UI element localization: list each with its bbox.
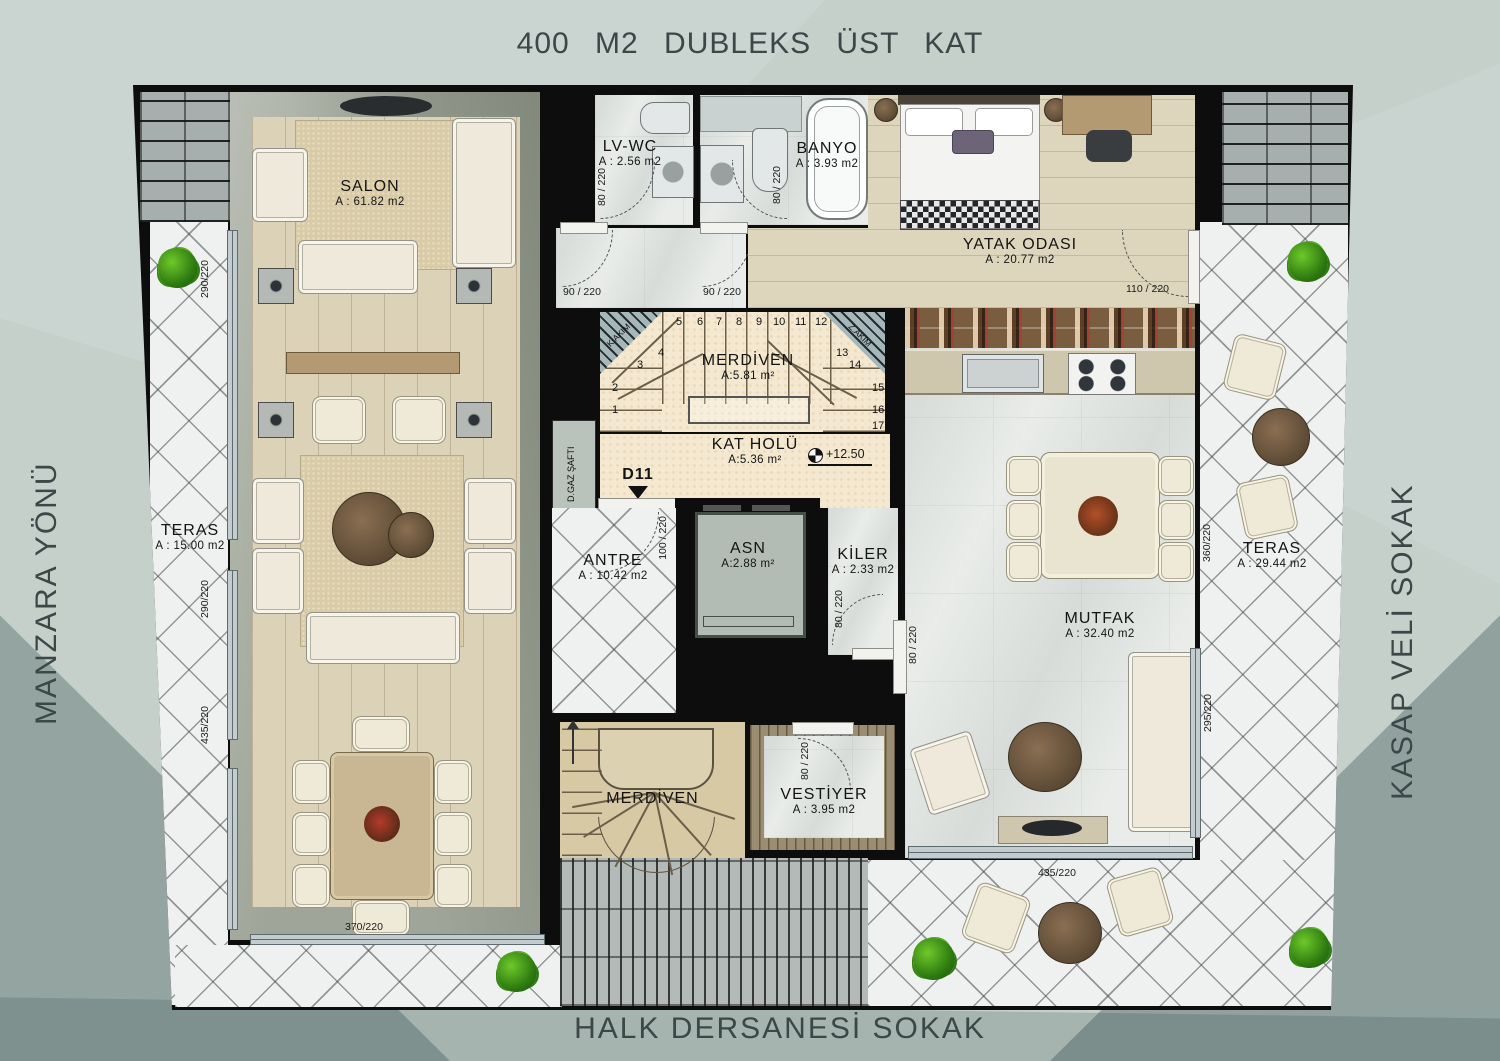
elevator-sill — [703, 616, 794, 627]
room-name: BANYO — [772, 140, 882, 158]
plan-title: 400 M2 DUBLEKS ÜST KAT — [0, 27, 1500, 61]
floorplan-page: { "colors":{"wall":"#0d0d0d","background… — [0, 0, 1500, 1061]
room-name: LV-WC — [560, 138, 700, 156]
room-label-antre: ANTRE A : 10.42 m2 — [548, 552, 678, 584]
stair-number: 14 — [849, 360, 861, 371]
bedroom-floor — [748, 228, 870, 308]
sofa — [306, 612, 460, 664]
window-dim-salon-1: 290/220 — [200, 260, 211, 298]
room-area: A : 2.33 m2 — [820, 564, 906, 577]
hatched-block-northeast — [1222, 92, 1348, 225]
console-table — [340, 96, 432, 116]
door-dim-lvwc: 80 / 220 — [597, 168, 608, 206]
room-name: KAT HOLÜ — [690, 436, 820, 454]
room-label-teras-west: TERAS A : 15.00 m2 — [150, 522, 230, 554]
room-name: ANTRE — [548, 552, 678, 570]
hatched-block-northwest — [140, 92, 230, 222]
room-area: A:2.88 m² — [700, 558, 796, 571]
stair-number: 2 — [612, 383, 618, 394]
sofa — [1128, 652, 1198, 832]
stair-number: 9 — [756, 317, 762, 328]
side-table — [388, 512, 434, 558]
stair-number: 16 — [872, 405, 884, 416]
room-label-teras-east: TERAS A : 29.44 m2 — [1222, 540, 1322, 572]
window — [227, 230, 238, 540]
speaker — [258, 268, 294, 304]
kitchen-sink — [962, 354, 1044, 393]
floor-plan: SALON A : 61.82 m2 80 / 220 LV-WC A : 2.… — [0, 0, 1500, 1061]
room-area: A : 29.44 m2 — [1222, 558, 1322, 571]
direction-arrow-shaft — [572, 726, 574, 764]
room-label-kiler: KİLER A : 2.33 m2 — [820, 546, 906, 578]
street-label-bottom: HALK DERSANESİ SOKAK — [0, 1012, 1500, 1046]
kitchen-counter — [905, 350, 1195, 395]
plant — [158, 248, 198, 288]
door-tag-d11: D11 — [612, 466, 664, 484]
stair-number: 8 — [736, 317, 742, 328]
tv — [1022, 820, 1082, 836]
door-dim-banyo: 80 / 220 — [772, 166, 783, 204]
plant — [1288, 242, 1328, 282]
stair-treads — [600, 358, 662, 432]
stair-number: 15 — [872, 383, 884, 394]
door-opening — [852, 648, 894, 660]
elevator-door — [752, 505, 790, 511]
wardrobe — [905, 308, 1195, 348]
stair-landing — [598, 728, 714, 790]
room-name: ASN — [700, 540, 796, 558]
bed-footboard-throw — [900, 200, 1040, 230]
dining-chair — [1006, 500, 1042, 540]
door-dim-kiler: 80 / 220 — [834, 590, 845, 628]
window — [227, 768, 238, 930]
armchair — [392, 396, 446, 444]
room-name: MUTFAK — [1045, 610, 1155, 628]
toilet — [640, 102, 690, 134]
room-name: VESTİYER — [768, 786, 880, 804]
room-name: KİLER — [820, 546, 906, 564]
dining-chair — [1158, 500, 1194, 540]
room-label-salon: SALON A : 61.82 m2 — [300, 178, 440, 210]
stair-number: 3 — [637, 360, 643, 371]
room-area: A:5.81 m² — [688, 370, 808, 383]
terrace-table — [1038, 902, 1102, 964]
room-label-merdiven-alt: MERDİVEN — [595, 790, 710, 808]
room-area: A : 32.40 m2 — [1045, 628, 1155, 641]
armchair — [464, 478, 516, 544]
dining-chair — [1006, 542, 1042, 582]
sofa — [452, 118, 516, 268]
armchair — [464, 548, 516, 614]
room-label-banyo: BANYO A : 3.93 m2 — [772, 140, 882, 172]
street-label-left: MANZARA YÖNÜ — [30, 385, 64, 725]
room-area: A:5.36 m² — [690, 454, 820, 467]
room-name: SALON — [300, 178, 440, 196]
room-label-mutfak: MUTFAK A : 32.40 m2 — [1045, 610, 1155, 642]
plant — [1290, 928, 1330, 968]
gas-shaft-label: D.GAZ ŞAFTI — [566, 426, 576, 502]
room-label-merdiven-ust: MERDİVEN A:5.81 m² — [688, 352, 808, 384]
desk — [1062, 95, 1152, 135]
hatched-block-south — [560, 858, 868, 1006]
window — [227, 570, 238, 740]
door-dim-bedroom: 110 / 220 — [1126, 284, 1169, 295]
loveseat — [298, 240, 418, 294]
dining-chair — [1158, 542, 1194, 582]
plant — [913, 938, 955, 980]
centerpiece-flowers — [364, 806, 400, 842]
door-dim-hall-1: 90 / 220 — [563, 287, 601, 298]
door-opening — [1188, 230, 1200, 304]
stair-landing — [688, 396, 810, 424]
dining-chair — [1158, 456, 1194, 496]
round-rug — [1008, 722, 1082, 792]
speaker — [456, 268, 492, 304]
room-label-yatak-odasi: YATAK ODASI A : 20.77 m2 — [940, 236, 1100, 268]
window-dim-salon-bottom: 370/220 — [345, 922, 383, 933]
armchair — [312, 396, 366, 444]
speaker — [456, 402, 492, 438]
elevator-door — [703, 505, 741, 511]
room-area: A : 2.56 m2 — [560, 156, 700, 169]
stair-number: 17 — [872, 421, 884, 432]
dining-chair — [292, 864, 330, 908]
room-name: TERAS — [1222, 540, 1322, 558]
dining-chair — [434, 812, 472, 856]
room-area: A : 10.42 m2 — [548, 570, 678, 583]
level-marker-icon — [808, 448, 823, 463]
armchair — [252, 548, 304, 614]
window — [908, 846, 1193, 859]
window — [250, 934, 545, 945]
stair-number: 10 — [773, 317, 785, 328]
window — [1190, 648, 1201, 838]
stair-number: 13 — [836, 348, 848, 359]
door-opening — [792, 722, 854, 735]
dining-chair — [434, 864, 472, 908]
stair-number: 1 — [612, 405, 618, 416]
room-name: YATAK ODASI — [940, 236, 1100, 254]
stair-number: 12 — [815, 317, 827, 328]
room-label-kat-holu: KAT HOLÜ A:5.36 m² — [690, 436, 820, 468]
room-name: MERDİVEN — [688, 352, 808, 370]
stove — [1068, 353, 1136, 395]
level-underline — [808, 464, 872, 466]
nightstand — [874, 98, 898, 122]
room-area: A : 3.93 m2 — [772, 158, 882, 171]
window-dim-mutfak-side: 295/220 — [1203, 694, 1214, 732]
room-area: A : 3.95 m2 — [768, 804, 880, 817]
speaker — [258, 402, 294, 438]
room-label-asn: ASN A:2.88 m² — [700, 540, 796, 572]
bath-counter — [700, 96, 802, 132]
window-dim-salon-3: 435/220 — [200, 706, 211, 744]
door-dim-hall-2: 90 / 220 — [703, 287, 741, 298]
room-label-lvwc: LV-WC A : 2.56 m2 — [560, 138, 700, 170]
direction-arrow-head — [567, 720, 579, 729]
window-dim-teras: 360/220 — [1202, 524, 1213, 562]
door-opening — [893, 620, 907, 694]
window-dim-mutfak-bottom: 435/220 — [1038, 868, 1076, 879]
stair-number: 7 — [716, 317, 722, 328]
dining-chair — [1006, 456, 1042, 496]
door-dim-mutfak: 80 / 220 — [908, 626, 919, 664]
street-label-right: KASAP VELİ SOKAK — [1386, 360, 1420, 800]
sideboard — [286, 352, 460, 374]
room-area: A : 61.82 m2 — [300, 196, 440, 209]
level-value: +12.50 — [826, 448, 865, 461]
centerpiece-flowers — [1078, 496, 1118, 536]
stair-number: 6 — [697, 317, 703, 328]
terrace-west-floor — [150, 222, 228, 1005]
dining-chair — [292, 760, 330, 804]
room-name: TERAS — [150, 522, 230, 540]
dining-chair — [292, 812, 330, 856]
terrace-table — [1252, 408, 1310, 466]
plant — [497, 952, 537, 992]
room-label-vestiyer: VESTİYER A : 3.95 m2 — [768, 786, 880, 818]
window-dim-salon-2: 290/220 — [200, 580, 211, 618]
dining-chair — [352, 716, 410, 752]
accent-pillow — [952, 130, 994, 154]
room-area: A : 15.00 m2 — [150, 540, 230, 553]
stair-number: 11 — [795, 317, 806, 328]
room-area: A : 20.77 m2 — [940, 254, 1100, 267]
stair-number: 4 — [658, 348, 664, 359]
room-name: MERDİVEN — [595, 790, 710, 808]
dining-chair — [434, 760, 472, 804]
door-dim-vestiyer: 80 / 220 — [800, 742, 811, 780]
stair-number: 5 — [676, 317, 682, 328]
desk-chair — [1086, 130, 1132, 162]
armchair — [252, 478, 304, 544]
terrace-chair — [1235, 473, 1300, 541]
